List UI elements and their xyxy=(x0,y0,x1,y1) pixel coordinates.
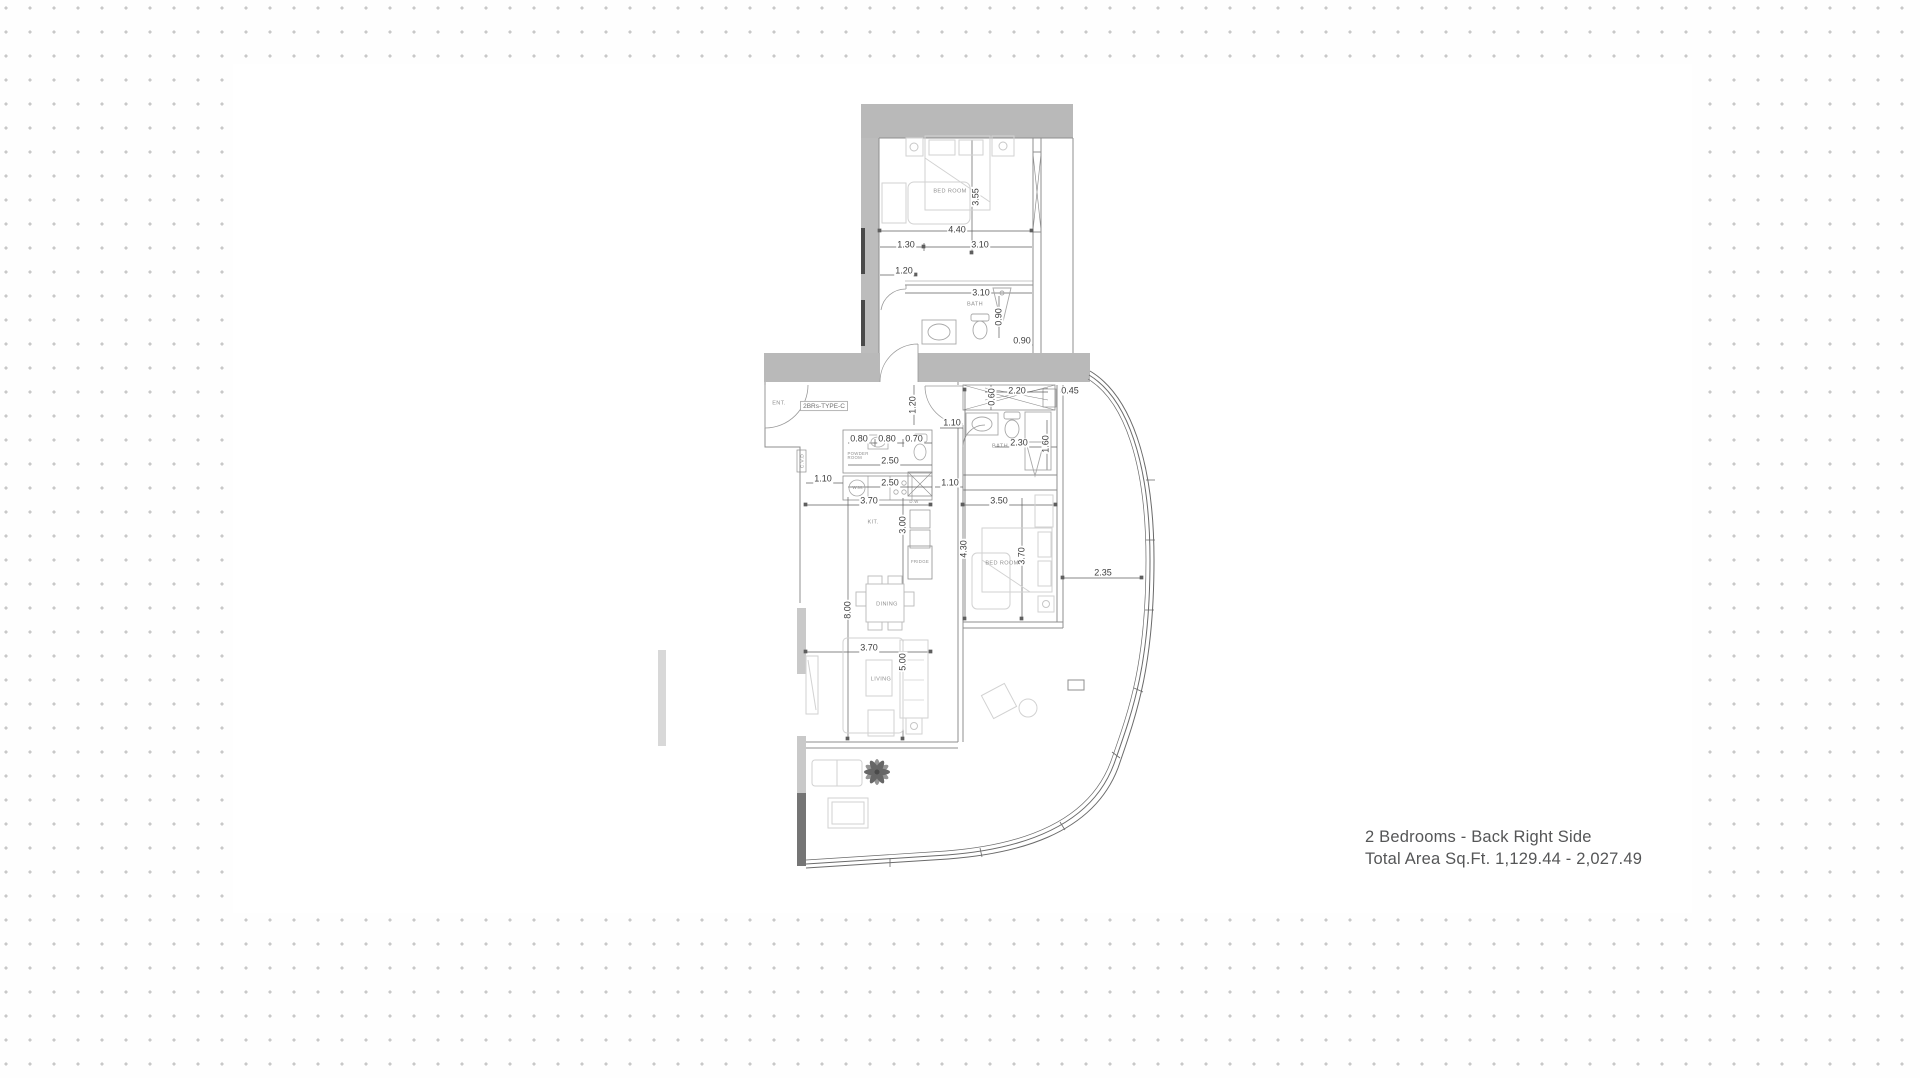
curved-glass-wall xyxy=(806,371,1155,868)
dim-bedroom2-width: 3.50 xyxy=(989,497,1009,506)
room-label-bedroom1: BED ROOM xyxy=(933,188,966,194)
dim-310a: 3.10 xyxy=(970,241,990,250)
floorplan-page: { "footer": { "line1": "2 Bedrooms - Bac… xyxy=(0,0,1920,1078)
unit-type-tag: 2BRs-TYPE-C xyxy=(800,401,848,411)
dim-120a: 1.20 xyxy=(894,267,914,276)
dim-060v: 0.60 xyxy=(988,387,997,407)
dim-090h: 0.90 xyxy=(1012,337,1032,346)
room-label-bedroom2: BED ROOM xyxy=(985,560,1018,566)
room-label-powder-room: POWDER ROOM xyxy=(847,451,868,460)
dim-080a: 0.80 xyxy=(849,435,869,444)
plan-caption-area: Total Area Sq.Ft. 1,129.44 - 2,027.49 xyxy=(1365,848,1642,870)
dim-110c: 1.10 xyxy=(940,479,960,488)
dim-800v: 8.00 xyxy=(844,600,853,620)
dim-160v: 1.60 xyxy=(1042,434,1051,454)
room-label-kitchen: KIT. xyxy=(867,519,878,525)
plan-caption: 2 Bedrooms - Back Right Side Total Area … xyxy=(1365,826,1642,870)
bedroom1-furniture xyxy=(882,136,1014,224)
dim-bedroom1-depth: 3.55 xyxy=(972,187,981,207)
balcony-furniture xyxy=(812,680,1084,828)
room-label-bath1: BATH xyxy=(967,301,983,307)
dim-kitchen-width: 3.70 xyxy=(859,497,879,506)
dim-080b: 0.80 xyxy=(877,435,897,444)
floorplan-drawing xyxy=(600,80,1220,900)
dim-bath1-width: 3.10 xyxy=(971,289,991,298)
room-label-bath2: BATH xyxy=(992,443,1008,449)
dim-bath2-width: 2.30 xyxy=(1009,439,1029,448)
label-fridge: FRIDGE xyxy=(911,560,929,565)
dim-living-width: 3.70 xyxy=(859,644,879,653)
label-duct: C.V.D xyxy=(799,454,804,468)
dim-bedroom2-depth: 3.70 xyxy=(1018,546,1027,566)
dim-090v: 0.90 xyxy=(995,307,1004,327)
dim-220: 2.20 xyxy=(1007,387,1027,396)
room-label-living: LIVING xyxy=(871,676,892,682)
dim-bedroom1-width: 4.40 xyxy=(947,226,967,235)
living-furniture xyxy=(806,638,928,736)
label-washing-machine: W.M. xyxy=(853,486,864,491)
dim-110a: 1.10 xyxy=(942,419,962,428)
room-label-dining: DINING xyxy=(876,601,898,607)
dim-250a: 2.50 xyxy=(880,457,900,466)
dim-300v: 3.00 xyxy=(899,515,908,535)
bedroom2-furniture xyxy=(972,495,1054,612)
dim-045: 0.45 xyxy=(1060,387,1080,396)
neighbor-wall-stub xyxy=(658,650,666,746)
dim-110b: 1.10 xyxy=(813,475,833,484)
dim-250b: 2.50 xyxy=(880,479,900,488)
dim-130: 1.30 xyxy=(896,241,916,250)
dim-120v: 1.20 xyxy=(909,395,918,415)
plant-icon xyxy=(864,759,890,785)
dim-070: 0.70 xyxy=(904,435,924,444)
plan-caption-title: 2 Bedrooms - Back Right Side xyxy=(1365,826,1642,848)
walls xyxy=(658,104,1090,866)
label-dishwasher: D.W xyxy=(909,500,918,505)
dim-balcony-235: 2.35 xyxy=(1093,569,1113,578)
dim-430v: 4.30 xyxy=(960,539,969,559)
room-label-entrance: ENT. xyxy=(772,400,786,406)
dim-living-depth: 5.00 xyxy=(899,652,908,672)
